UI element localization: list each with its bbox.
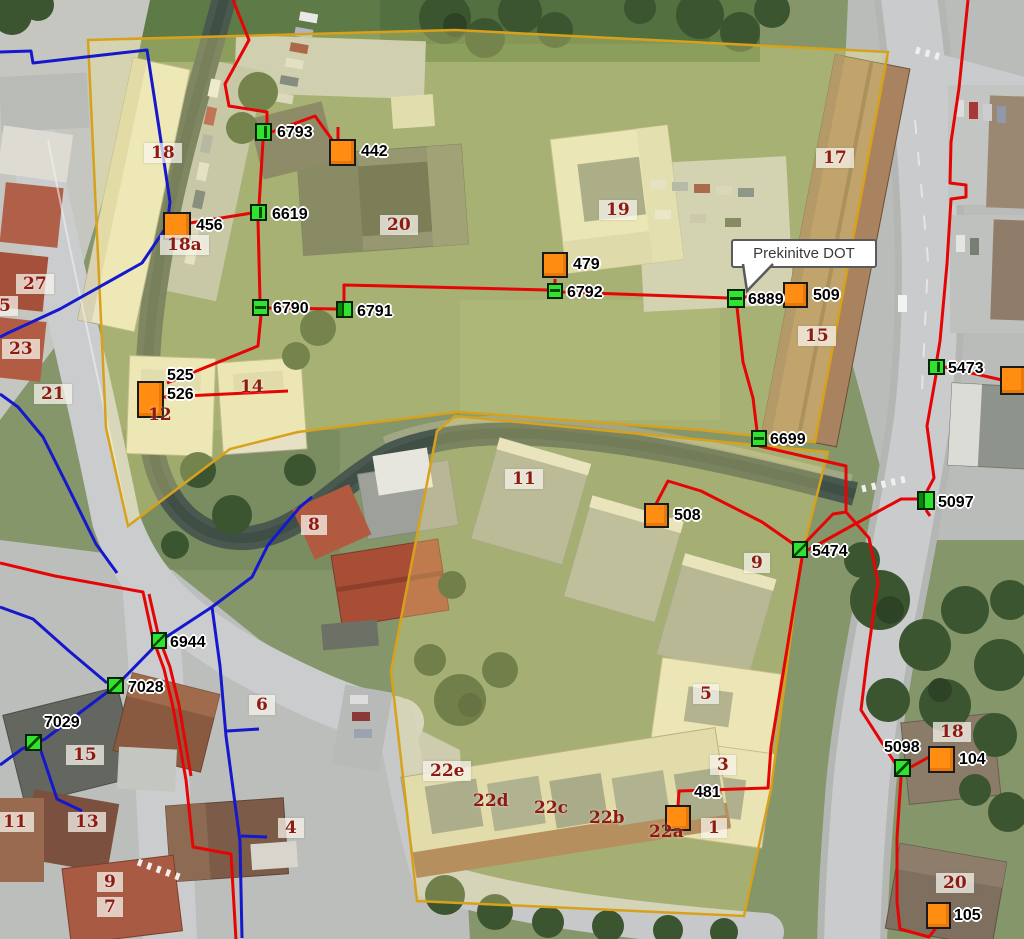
building-label-18: 18 (933, 722, 971, 742)
building-label-7: 7 (97, 897, 123, 917)
map-canvas[interactable]: 6793661967906791679268896699547454735097… (0, 0, 1024, 939)
building-label-20: 20 (936, 873, 974, 893)
node-label-525: 525 (167, 367, 194, 385)
building-label-5: 5 (693, 684, 719, 704)
node-label-104: 104 (959, 751, 986, 769)
building-label-11: 11 (505, 469, 543, 489)
node-label-6792: 6792 (567, 284, 603, 302)
building-label-9: 9 (744, 553, 770, 573)
building-label-23: 23 (2, 339, 40, 359)
building-label-15: 15 (66, 745, 104, 765)
building-label-3: 3 (710, 755, 736, 775)
building-label-20: 20 (380, 215, 418, 235)
building-label-6: 6 (249, 695, 275, 715)
node-label-456: 456 (196, 217, 223, 235)
node-label-509: 509 (813, 287, 840, 305)
node-label-479: 479 (573, 256, 600, 274)
node-label-5474: 5474 (812, 543, 848, 561)
node-label-5098: 5098 (884, 739, 920, 757)
node-label-7029: 7029 (44, 714, 80, 732)
building-label-5: 5 (0, 296, 18, 316)
node-label-105: 105 (954, 907, 981, 925)
building-label-22e: 22e (423, 761, 471, 781)
building-label-22b: 22b (589, 808, 625, 828)
building-label-17: 17 (816, 148, 854, 168)
node-label-6791: 6791 (357, 303, 393, 321)
network-tooltip: Prekinitve DOT (731, 239, 877, 268)
building-label-27: 27 (16, 274, 54, 294)
node-label-442: 442 (361, 143, 388, 161)
building-label-22a: 22a (649, 822, 684, 842)
node-label-7028: 7028 (128, 679, 164, 697)
node-label-508: 508 (674, 507, 701, 525)
building-label-22d: 22d (473, 791, 509, 811)
node-label-526: 526 (167, 386, 194, 404)
node-label-6699: 6699 (770, 431, 806, 449)
node-label-6790: 6790 (273, 300, 309, 318)
building-label-14: 14 (240, 377, 264, 397)
building-label-21: 21 (34, 384, 72, 404)
node-label-481: 481 (694, 784, 721, 802)
node-label-5097: 5097 (938, 494, 974, 512)
building-label-19: 19 (599, 200, 637, 220)
building-label-9: 9 (97, 872, 123, 892)
node-label-5473: 5473 (948, 360, 984, 378)
node-label-6619: 6619 (272, 206, 308, 224)
building-label-4: 4 (278, 818, 304, 838)
node-label-6793: 6793 (277, 124, 313, 142)
building-label-11: 11 (0, 812, 34, 832)
building-label-8: 8 (301, 515, 327, 535)
tooltip-text: Prekinitve DOT (753, 245, 855, 262)
building-label-22c: 22c (534, 798, 568, 818)
building-label-13: 13 (68, 812, 106, 832)
node-label-6944: 6944 (170, 634, 206, 652)
building-label-15: 15 (798, 326, 836, 346)
building-label-12: 12 (148, 405, 172, 425)
tooltip-pointer (737, 264, 781, 294)
building-label-18a: 18a (160, 235, 209, 255)
building-label-18: 18 (144, 143, 182, 163)
map-labels-layer: 6793661967906791679268896699547454735097… (0, 0, 1024, 939)
building-label-1: 1 (701, 818, 727, 838)
